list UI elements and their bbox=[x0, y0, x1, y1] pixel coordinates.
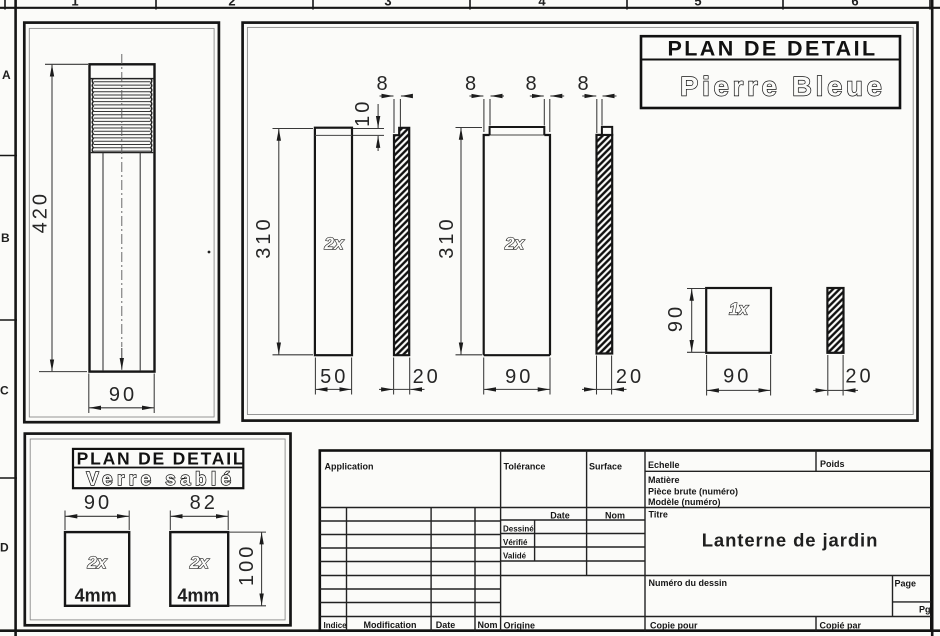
svg-text:6: 6 bbox=[851, 0, 858, 9]
svg-text:D: D bbox=[0, 541, 9, 555]
svg-text:Date: Date bbox=[436, 620, 456, 630]
svg-text:50: 50 bbox=[320, 366, 348, 388]
svg-text:Copie pour: Copie pour bbox=[650, 621, 698, 631]
svg-text:Titre: Titre bbox=[649, 510, 668, 520]
svg-text:Surface: Surface bbox=[589, 462, 622, 472]
svg-text:Origine: Origine bbox=[504, 621, 536, 631]
svg-text:C: C bbox=[0, 384, 9, 398]
svg-text:90: 90 bbox=[723, 366, 751, 388]
svg-text:Validé: Validé bbox=[503, 552, 527, 561]
svg-text:4mm: 4mm bbox=[177, 586, 219, 606]
svg-text:10: 10 bbox=[352, 99, 374, 127]
svg-text:5: 5 bbox=[694, 0, 701, 9]
svg-text:310: 310 bbox=[253, 216, 275, 258]
svg-text:Verre sablé: Verre sablé bbox=[86, 468, 235, 489]
svg-text:B: B bbox=[1, 231, 10, 245]
svg-text:8: 8 bbox=[525, 73, 539, 95]
svg-text:Numéro du dessin: Numéro du dessin bbox=[649, 578, 728, 588]
svg-text:Nom: Nom bbox=[605, 511, 625, 521]
svg-text:Pierre Bleue: Pierre Bleue bbox=[680, 72, 886, 102]
svg-text:20: 20 bbox=[413, 366, 441, 388]
svg-text:4mm: 4mm bbox=[75, 586, 117, 606]
svg-text:2x: 2x bbox=[324, 234, 345, 253]
svg-text:Copié par: Copié par bbox=[820, 621, 862, 631]
svg-text:Dessiné: Dessiné bbox=[503, 525, 534, 534]
svg-text:2x: 2x bbox=[189, 553, 210, 572]
svg-text:2x: 2x bbox=[87, 553, 108, 572]
svg-text:4: 4 bbox=[538, 0, 546, 9]
svg-text:PLAN DE DETAIL: PLAN DE DETAIL bbox=[668, 37, 878, 61]
svg-text:90: 90 bbox=[665, 304, 687, 332]
svg-text:8: 8 bbox=[465, 73, 479, 95]
svg-text:Echelle: Echelle bbox=[648, 460, 680, 470]
svg-text:420: 420 bbox=[29, 191, 51, 233]
svg-text:Page: Page bbox=[895, 579, 917, 589]
svg-text:2: 2 bbox=[228, 0, 235, 9]
svg-text:90: 90 bbox=[84, 492, 112, 514]
svg-text:Indice: Indice bbox=[324, 621, 348, 630]
svg-text:8: 8 bbox=[577, 73, 591, 95]
svg-text:PLAN DE DETAIL: PLAN DE DETAIL bbox=[77, 448, 246, 468]
svg-text:Pg: Pg bbox=[919, 605, 931, 615]
svg-text:90: 90 bbox=[109, 384, 137, 406]
svg-text:82: 82 bbox=[190, 492, 218, 514]
svg-text:1: 1 bbox=[71, 0, 78, 9]
svg-text:Modification: Modification bbox=[364, 620, 417, 630]
svg-text:Pièce brute (numéro): Pièce brute (numéro) bbox=[648, 487, 738, 497]
svg-text:100: 100 bbox=[236, 544, 258, 586]
svg-text:90: 90 bbox=[505, 366, 533, 388]
svg-text:1x: 1x bbox=[729, 300, 749, 319]
svg-text:A: A bbox=[2, 68, 11, 82]
svg-text:Date: Date bbox=[550, 511, 570, 521]
svg-text:Modèle (numéro): Modèle (numéro) bbox=[648, 497, 721, 507]
svg-text:3: 3 bbox=[384, 0, 391, 9]
svg-text:Tolérance: Tolérance bbox=[504, 462, 546, 472]
svg-text:Matière: Matière bbox=[648, 475, 680, 485]
svg-text:2x: 2x bbox=[504, 234, 525, 253]
svg-text:Application: Application bbox=[325, 462, 374, 472]
svg-text:20: 20 bbox=[845, 366, 873, 388]
svg-text:8: 8 bbox=[376, 73, 390, 95]
svg-text:Vérifié: Vérifié bbox=[503, 538, 528, 547]
svg-text:Poids: Poids bbox=[820, 459, 845, 469]
svg-text:Lanterne de jardin: Lanterne de jardin bbox=[702, 530, 879, 551]
svg-text:310: 310 bbox=[436, 216, 458, 258]
svg-text:20: 20 bbox=[616, 366, 644, 388]
svg-text:Nom: Nom bbox=[478, 620, 498, 630]
